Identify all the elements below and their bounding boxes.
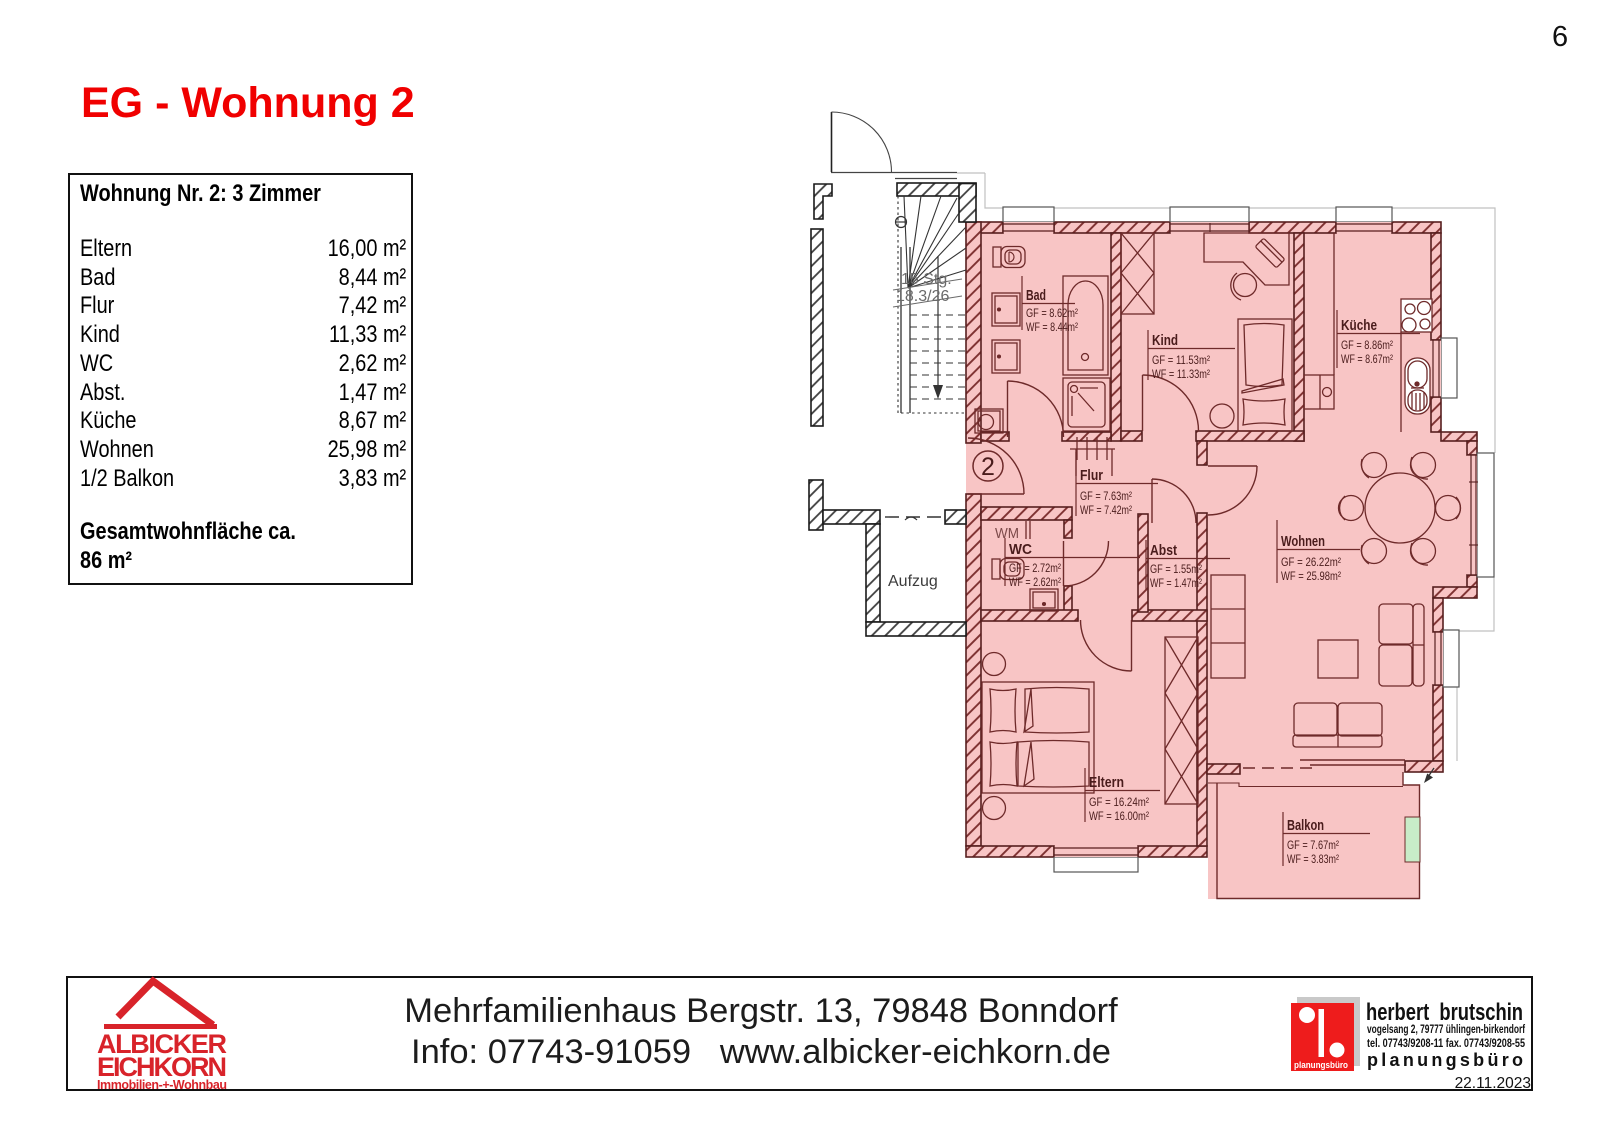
svg-text:WF = 7.42m²: WF = 7.42m²: [1080, 503, 1132, 517]
svg-text:WF = 25.98m²: WF = 25.98m²: [1281, 569, 1341, 583]
svg-text:WF = 1.47m²: WF = 1.47m²: [1150, 576, 1202, 590]
svg-text:GF = 2.72m²: GF = 2.72m²: [1009, 561, 1061, 575]
svg-text:Abst: Abst: [1150, 542, 1177, 559]
svg-text:GF = 7.67m²: GF = 7.67m²: [1287, 838, 1339, 852]
svg-text:WF = 16.00m²: WF = 16.00m²: [1089, 809, 1149, 823]
svg-text:Aufzug: Aufzug: [888, 573, 938, 590]
svg-text:WF = 8.44m²: WF = 8.44m²: [1026, 320, 1078, 334]
svg-text:WF = 2.62m²: WF = 2.62m²: [1009, 575, 1061, 589]
svg-text:Kind: Kind: [1152, 332, 1178, 349]
svg-text:15 Stg.: 15 Stg.: [901, 271, 952, 288]
svg-text:GF = 26.22m²: GF = 26.22m²: [1281, 555, 1341, 569]
svg-text:Wohnen: Wohnen: [1281, 533, 1325, 550]
svg-text:Balkon: Balkon: [1287, 817, 1324, 834]
svg-text:Bad: Bad: [1026, 287, 1046, 304]
svg-text:GF = 7.63m²: GF = 7.63m²: [1080, 489, 1132, 503]
svg-text:WF = 11.33m²: WF = 11.33m²: [1152, 367, 1210, 381]
svg-text:WM: WM: [995, 525, 1019, 542]
svg-text:WF = 8.67m²: WF = 8.67m²: [1341, 352, 1393, 366]
svg-text:Küche: Küche: [1341, 317, 1377, 334]
svg-text:Flur: Flur: [1080, 467, 1103, 484]
svg-text:2: 2: [981, 453, 995, 481]
svg-text:WF = 3.83m²: WF = 3.83m²: [1287, 852, 1339, 866]
svg-text:Eltern: Eltern: [1089, 774, 1124, 791]
svg-text:GF = 11.53m²: GF = 11.53m²: [1152, 353, 1210, 367]
svg-text:GF = 8.86m²: GF = 8.86m²: [1341, 338, 1393, 352]
svg-text:GF = 1.55m²: GF = 1.55m²: [1150, 562, 1202, 576]
svg-text:WC: WC: [1009, 541, 1032, 558]
svg-text:GF = 8.62m²: GF = 8.62m²: [1026, 306, 1078, 320]
svg-text:GF = 16.24m²: GF = 16.24m²: [1089, 795, 1149, 809]
